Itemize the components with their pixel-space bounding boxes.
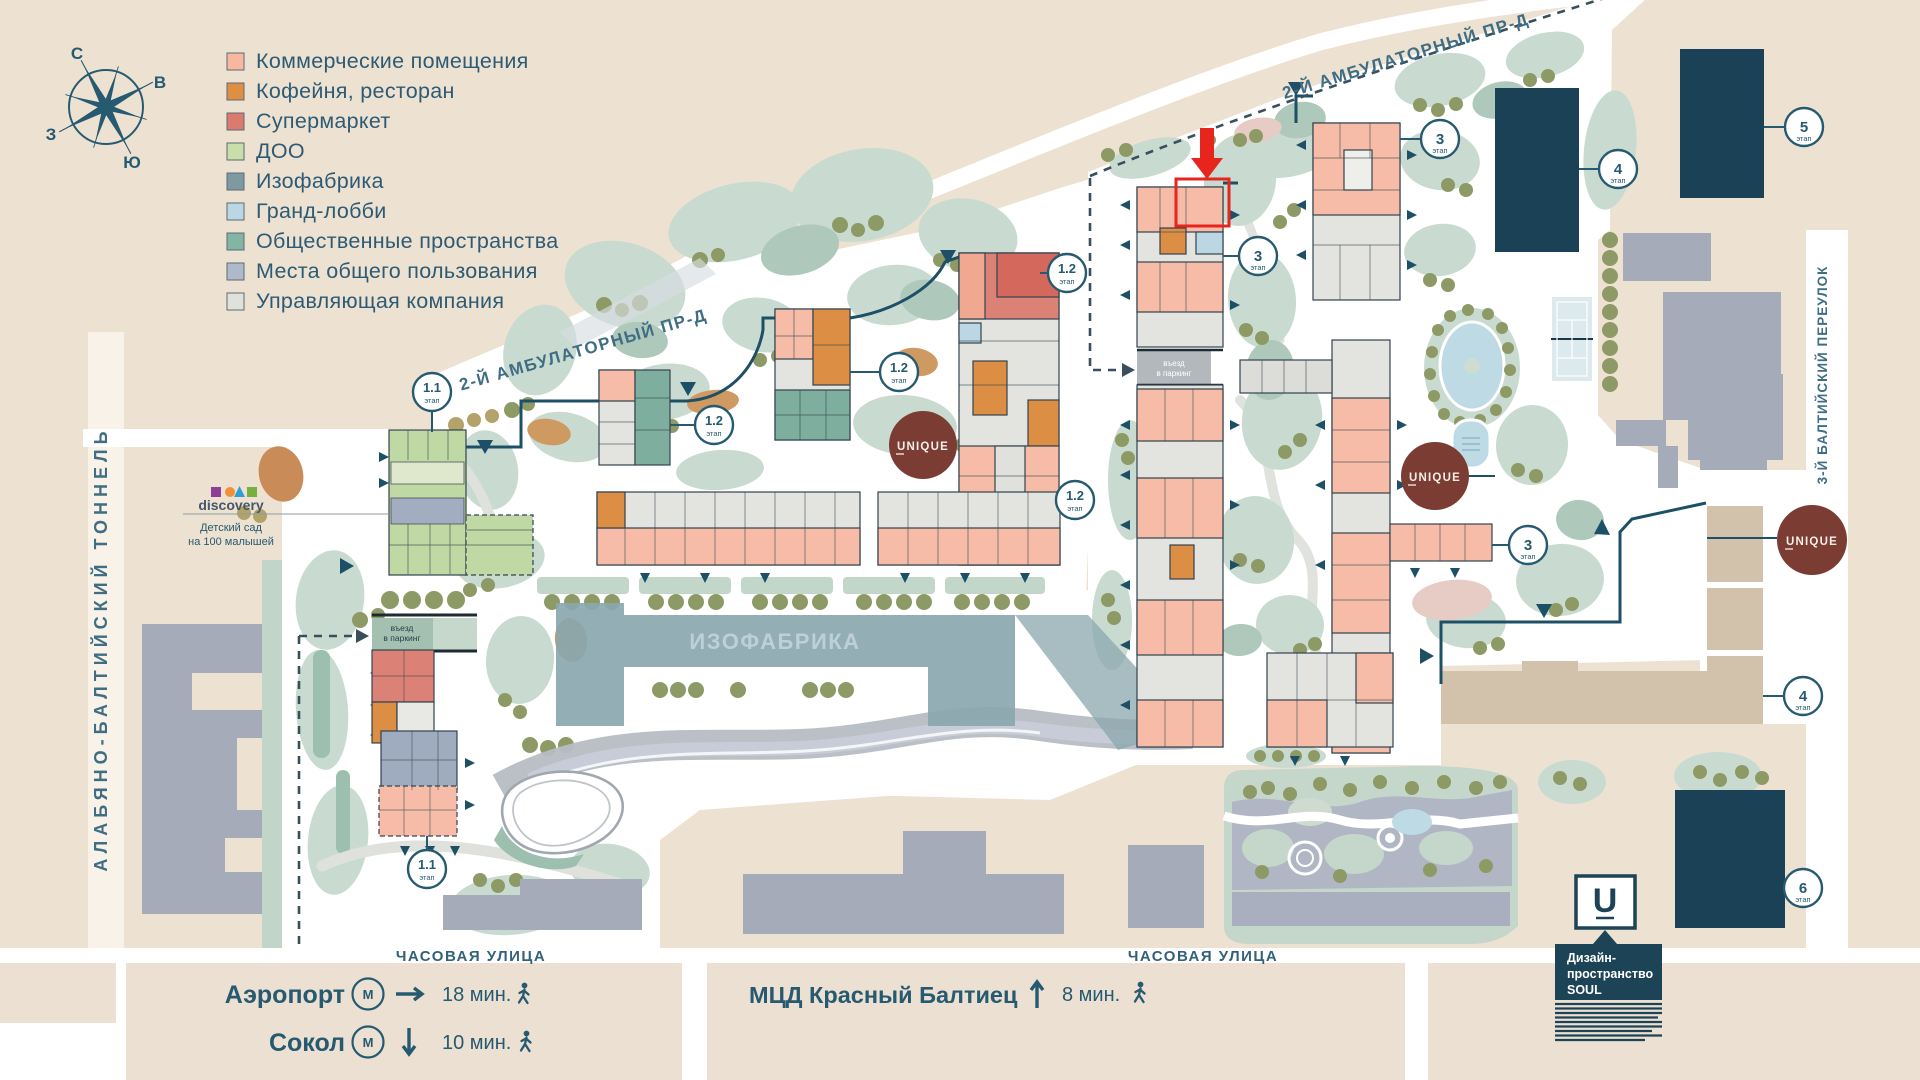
svg-text:UNIQUE: UNIQUE bbox=[1409, 472, 1461, 484]
svg-text:этап: этап bbox=[891, 376, 906, 385]
svg-text:Общественные пространства: Общественные пространства bbox=[256, 229, 558, 253]
svg-text:1.2: 1.2 bbox=[1058, 261, 1076, 276]
svg-text:въезд: въезд bbox=[1163, 359, 1185, 368]
svg-text:этап: этап bbox=[1067, 504, 1082, 513]
svg-text:этап: этап bbox=[1250, 263, 1265, 272]
svg-text:3-Й БАЛТИЙСКИЙ ПЕРЕУЛОК: 3-Й БАЛТИЙСКИЙ ПЕРЕУЛОК bbox=[1815, 266, 1830, 485]
svg-text:Дизайн-: Дизайн- bbox=[1567, 951, 1616, 965]
svg-text:Гранд-лобби: Гранд-лобби bbox=[256, 199, 387, 223]
svg-text:Ю: Ю bbox=[123, 153, 141, 172]
svg-text:1.2: 1.2 bbox=[1066, 488, 1084, 503]
svg-text:1.1: 1.1 bbox=[423, 380, 441, 395]
svg-text:discovery: discovery bbox=[198, 497, 264, 513]
svg-text:1.1: 1.1 bbox=[418, 857, 436, 872]
svg-text:Детский сад: Детский сад bbox=[200, 522, 262, 534]
svg-text:ИЗОФАБРИКА: ИЗОФАБРИКА bbox=[689, 629, 860, 654]
svg-text:1.2: 1.2 bbox=[705, 413, 723, 428]
svg-text:этап: этап bbox=[1796, 134, 1811, 143]
svg-text:этап: этап bbox=[419, 873, 434, 882]
svg-text:18 мин.: 18 мин. bbox=[442, 984, 511, 1006]
svg-text:этап: этап bbox=[1059, 277, 1074, 286]
svg-text:М: М bbox=[363, 1035, 374, 1050]
svg-text:на 100 малышей: на 100 малышей bbox=[188, 536, 274, 548]
svg-text:Места общего пользования: Места общего пользования bbox=[256, 259, 538, 283]
svg-text:пространство: пространство bbox=[1567, 967, 1653, 981]
svg-text:Супермаркет: Супермаркет bbox=[256, 109, 391, 133]
svg-text:10 мин.: 10 мин. bbox=[442, 1032, 511, 1054]
svg-text:Коммерческие помещения: Коммерческие помещения bbox=[256, 49, 529, 73]
svg-text:UNIQUE: UNIQUE bbox=[1786, 536, 1838, 548]
svg-text:Управляющая компания: Управляющая компания bbox=[256, 289, 504, 313]
svg-text:въезд: въезд bbox=[391, 623, 414, 633]
svg-text:Аэропорт: Аэропорт bbox=[225, 981, 345, 1009]
svg-text:U: U bbox=[1593, 882, 1618, 920]
svg-text:этап: этап bbox=[424, 396, 439, 405]
svg-text:этап: этап bbox=[1795, 895, 1810, 904]
svg-text:ДОО: ДОО bbox=[256, 139, 305, 163]
svg-text:В: В bbox=[154, 73, 166, 92]
svg-text:Изофабрика: Изофабрика bbox=[256, 169, 384, 193]
svg-text:этап: этап bbox=[1432, 146, 1447, 155]
svg-text:АЛАБЯНО-БАЛТИЙСКИЙ ТОННЕЛЬ: АЛАБЯНО-БАЛТИЙСКИЙ ТОННЕЛЬ bbox=[90, 426, 111, 871]
svg-text:этап: этап bbox=[1795, 703, 1810, 712]
svg-text:С: С bbox=[71, 44, 83, 63]
svg-text:SOUL: SOUL bbox=[1567, 983, 1602, 997]
svg-text:в паркинг: в паркинг bbox=[1156, 369, 1191, 378]
svg-text:в паркинг: в паркинг bbox=[383, 633, 420, 643]
svg-text:ЧАСОВАЯ УЛИЦА: ЧАСОВАЯ УЛИЦА bbox=[396, 948, 546, 965]
svg-text:UNIQUE: UNIQUE bbox=[897, 441, 949, 453]
svg-text:этап: этап bbox=[1520, 552, 1535, 561]
svg-text:этап: этап bbox=[706, 429, 721, 438]
svg-text:этап: этап bbox=[1610, 176, 1625, 185]
svg-text:1.2: 1.2 bbox=[890, 360, 908, 375]
svg-text:З: З bbox=[46, 125, 57, 144]
svg-text:Кофейня, ресторан: Кофейня, ресторан bbox=[256, 79, 455, 103]
svg-text:М: М bbox=[363, 987, 374, 1002]
svg-text:ЧАСОВАЯ УЛИЦА: ЧАСОВАЯ УЛИЦА bbox=[1128, 948, 1278, 965]
svg-text:Сокол: Сокол bbox=[269, 1029, 345, 1057]
svg-text:МЦД Красный Балтиец: МЦД Красный Балтиец bbox=[749, 982, 1018, 1008]
svg-text:8 мин.: 8 мин. bbox=[1062, 984, 1120, 1006]
